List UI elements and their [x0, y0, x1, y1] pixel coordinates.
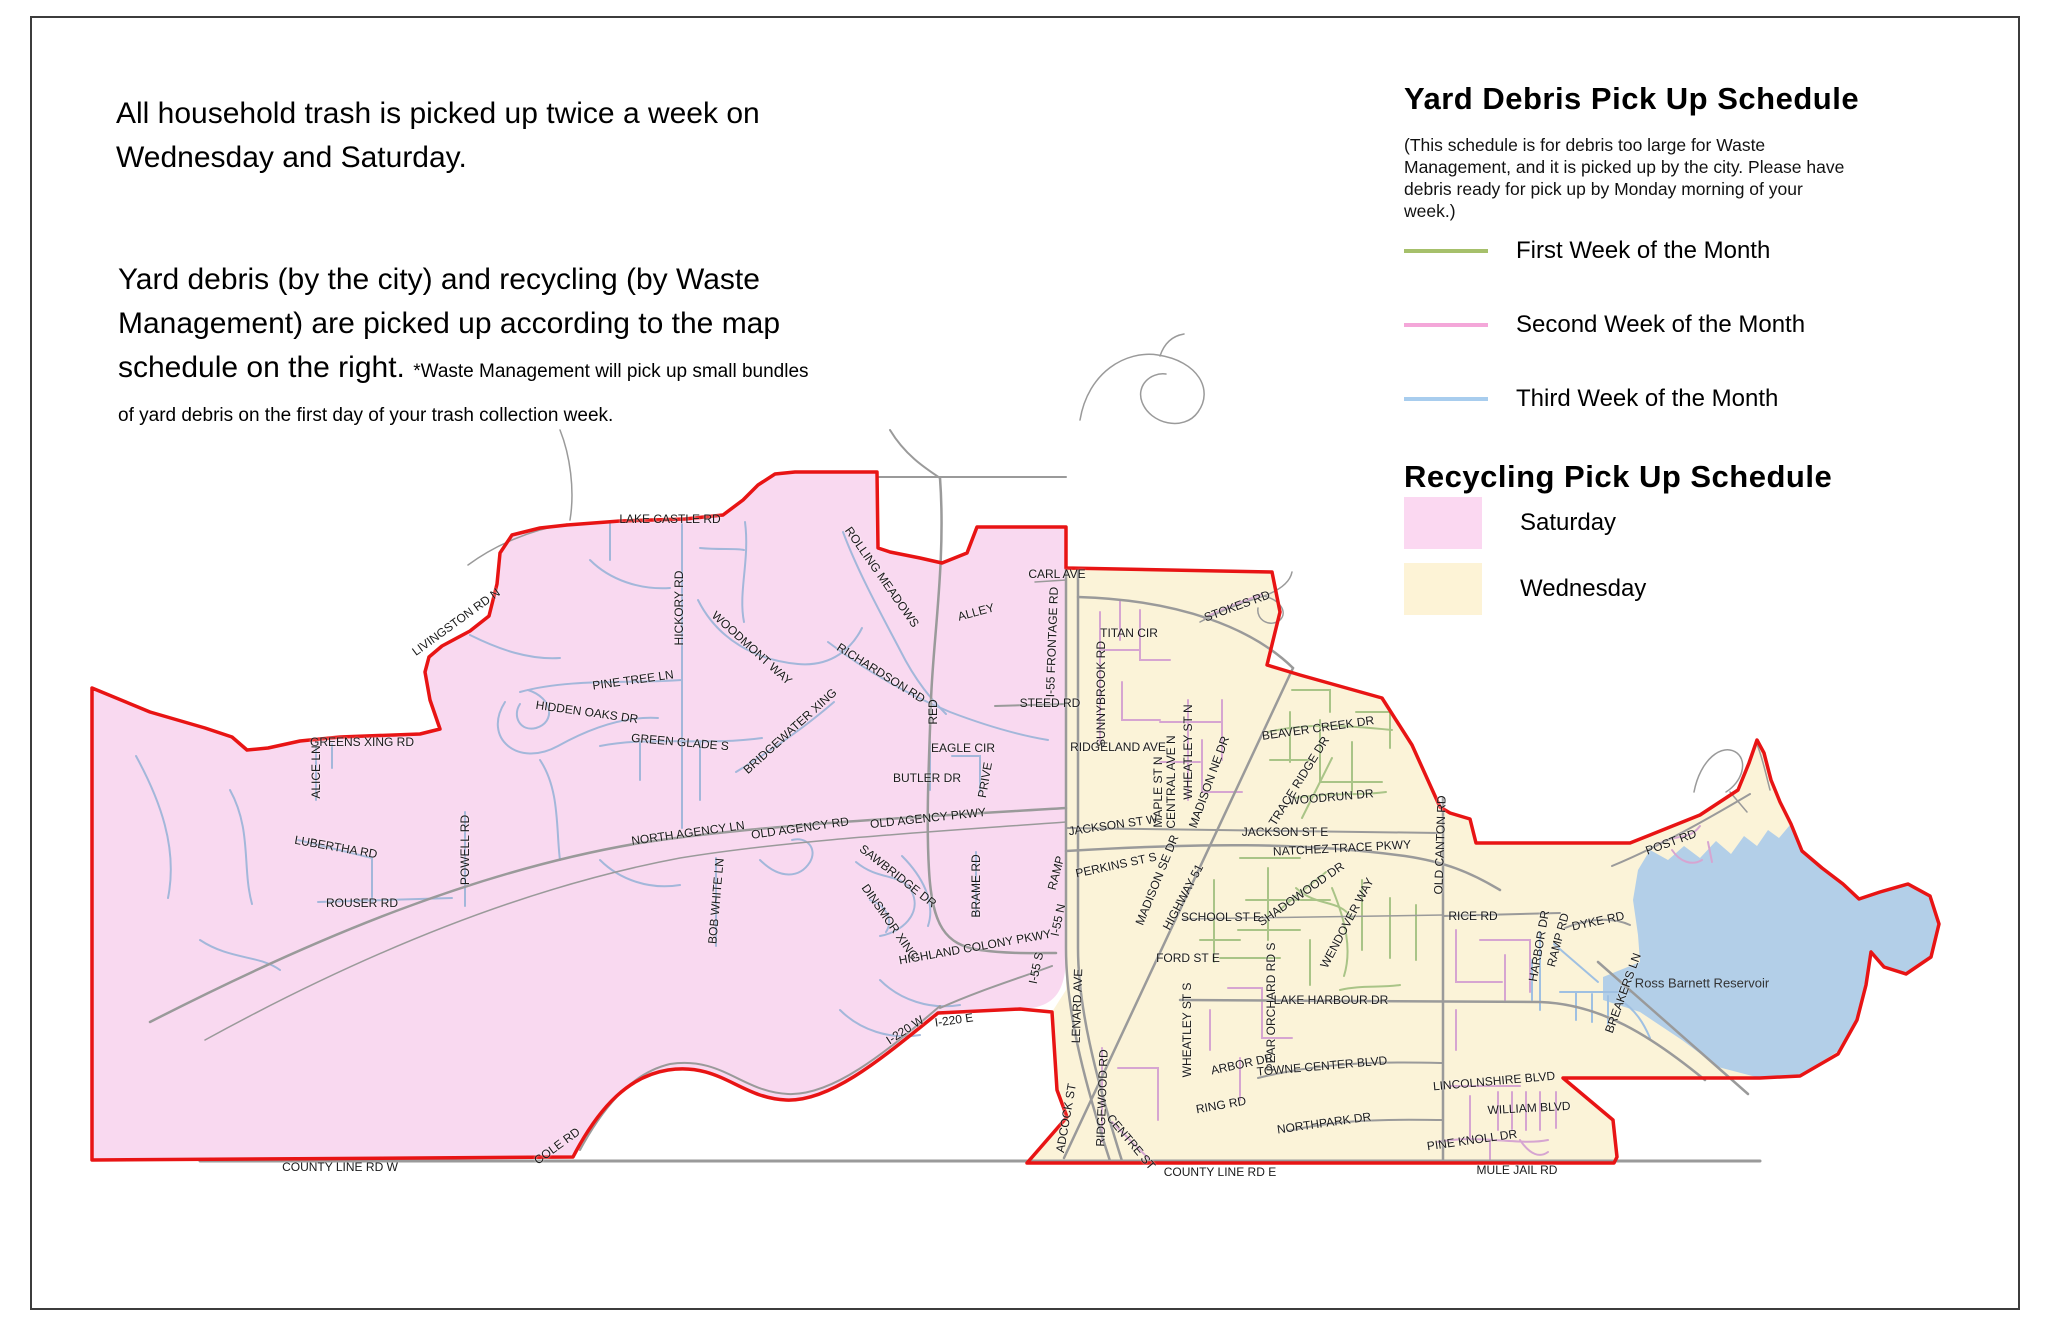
- page: All household trash is picked up twice a…: [0, 0, 2048, 1325]
- city-map-svg: [0, 0, 2048, 1325]
- pickup-zone-map: LAKE CASTLE RDLIVINGSTON RD NHICKORY RDR…: [0, 0, 2048, 1325]
